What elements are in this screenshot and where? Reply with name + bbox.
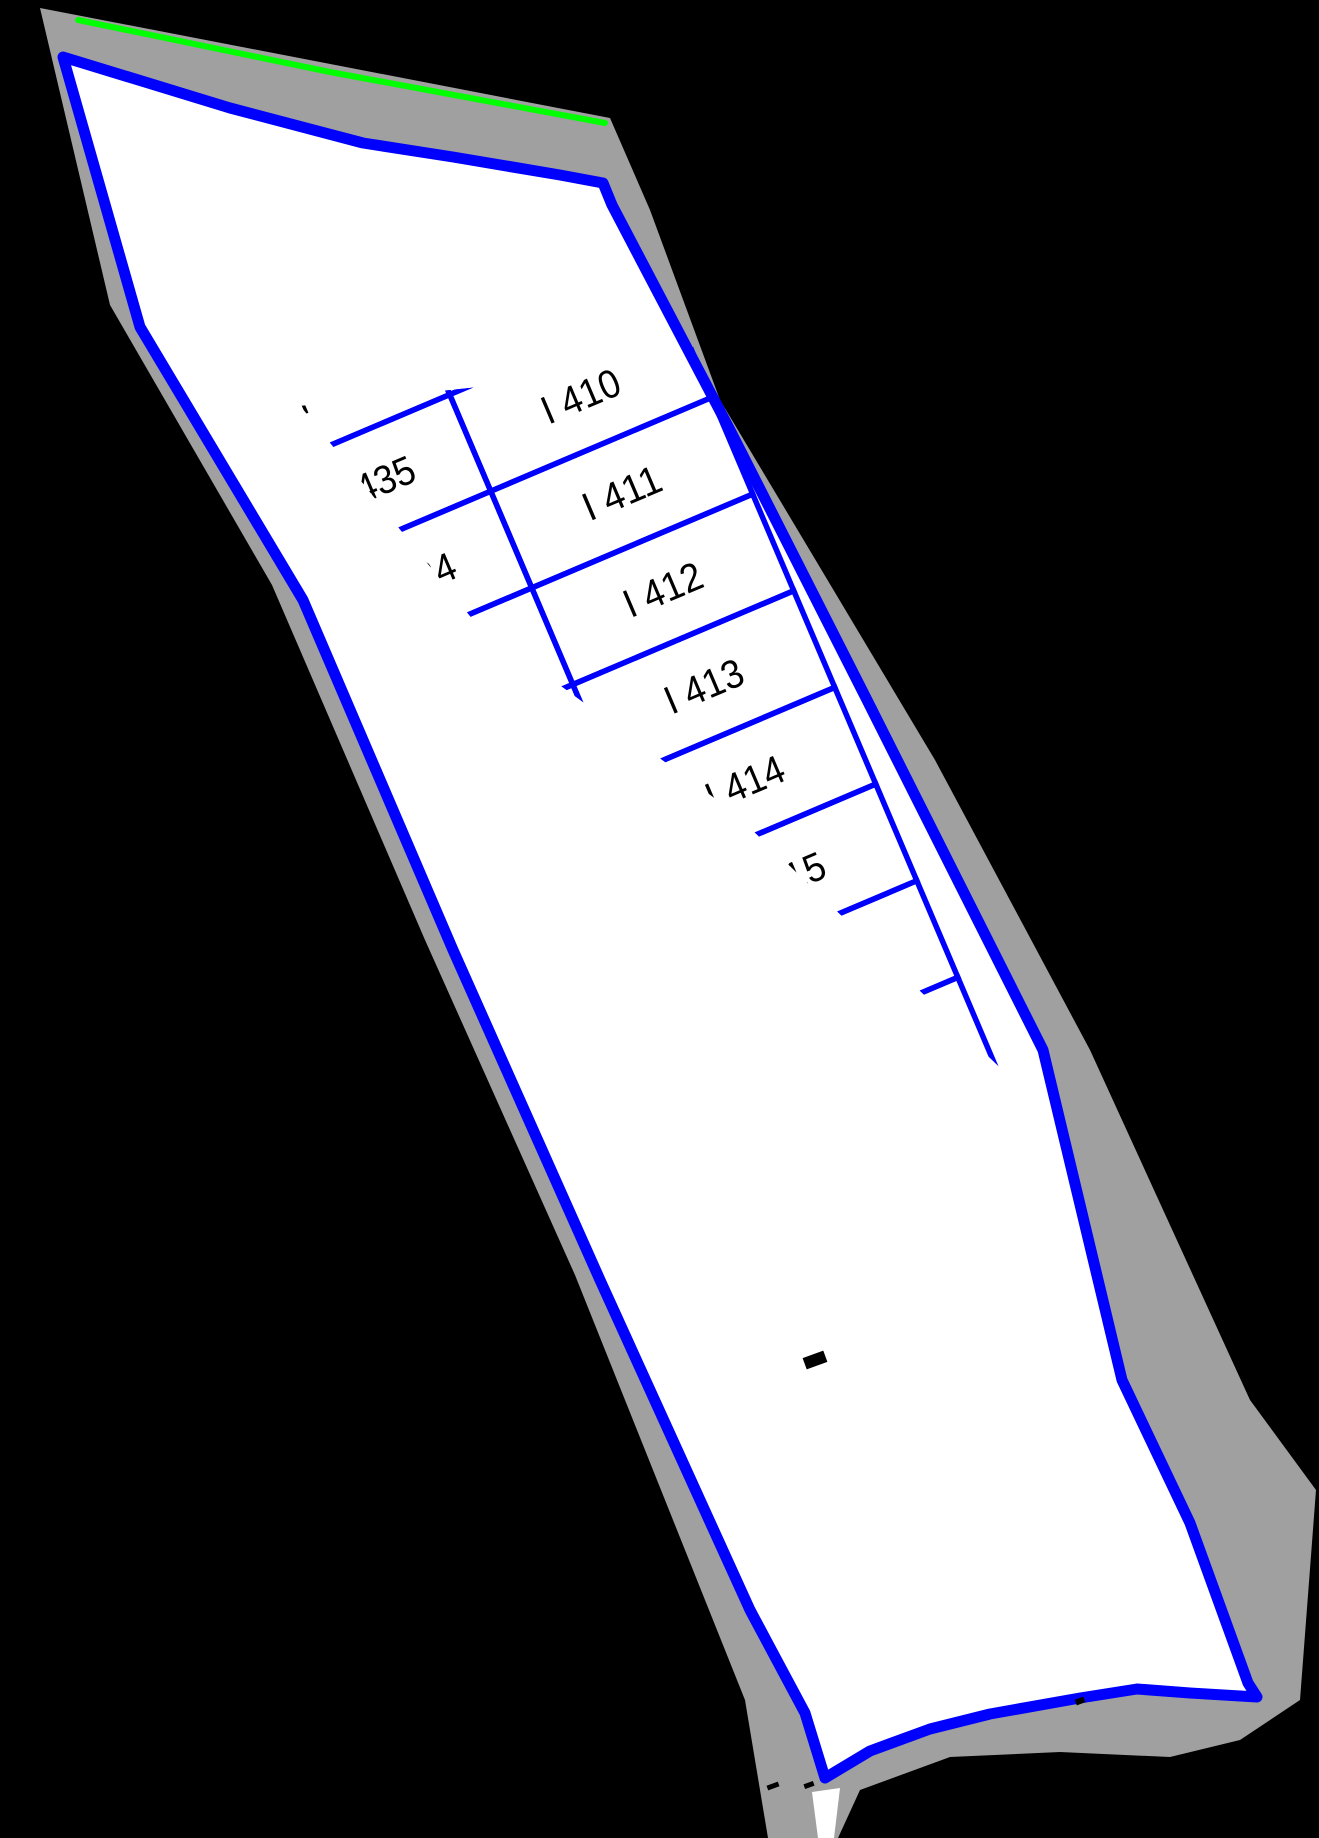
plat-map-stage: I 408I 436I 409I 435I 410I 434I 411I 433… — [0, 0, 1319, 1838]
plat-map-svg: I 408I 436I 409I 435I 410I 434I 411I 433… — [0, 0, 1319, 1838]
